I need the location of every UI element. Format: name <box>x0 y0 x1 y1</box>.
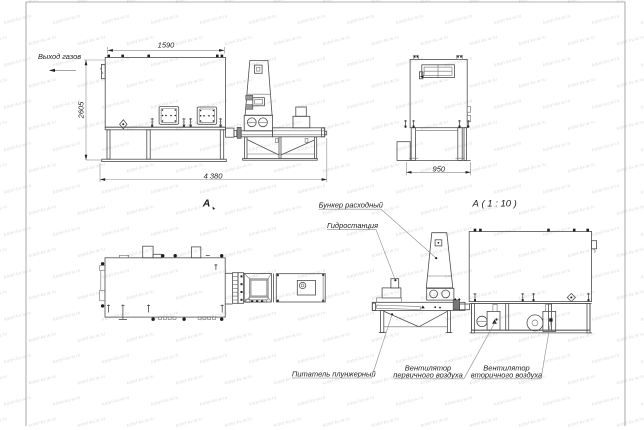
svg-text:вторичного воздуха: вторичного воздуха <box>471 370 542 379</box>
svg-text:А ( 1 : 10 ): А ( 1 : 10 ) <box>472 199 517 210</box>
svg-text:Выход газов: Выход газов <box>38 52 81 61</box>
svg-text:Гидростанция: Гидростанция <box>327 221 378 230</box>
svg-text:1590: 1590 <box>158 41 176 50</box>
svg-text:первичного воздуха: первичного воздуха <box>393 370 463 379</box>
svg-text:Питатель плунжерный: Питатель плунжерный <box>292 369 377 378</box>
svg-text:2605: 2605 <box>77 101 86 120</box>
svg-text:А: А <box>202 198 211 210</box>
svg-text:950: 950 <box>433 164 446 173</box>
svg-text:4 380: 4 380 <box>204 171 224 180</box>
svg-text:Бункер расходный: Бункер расходный <box>319 201 384 210</box>
